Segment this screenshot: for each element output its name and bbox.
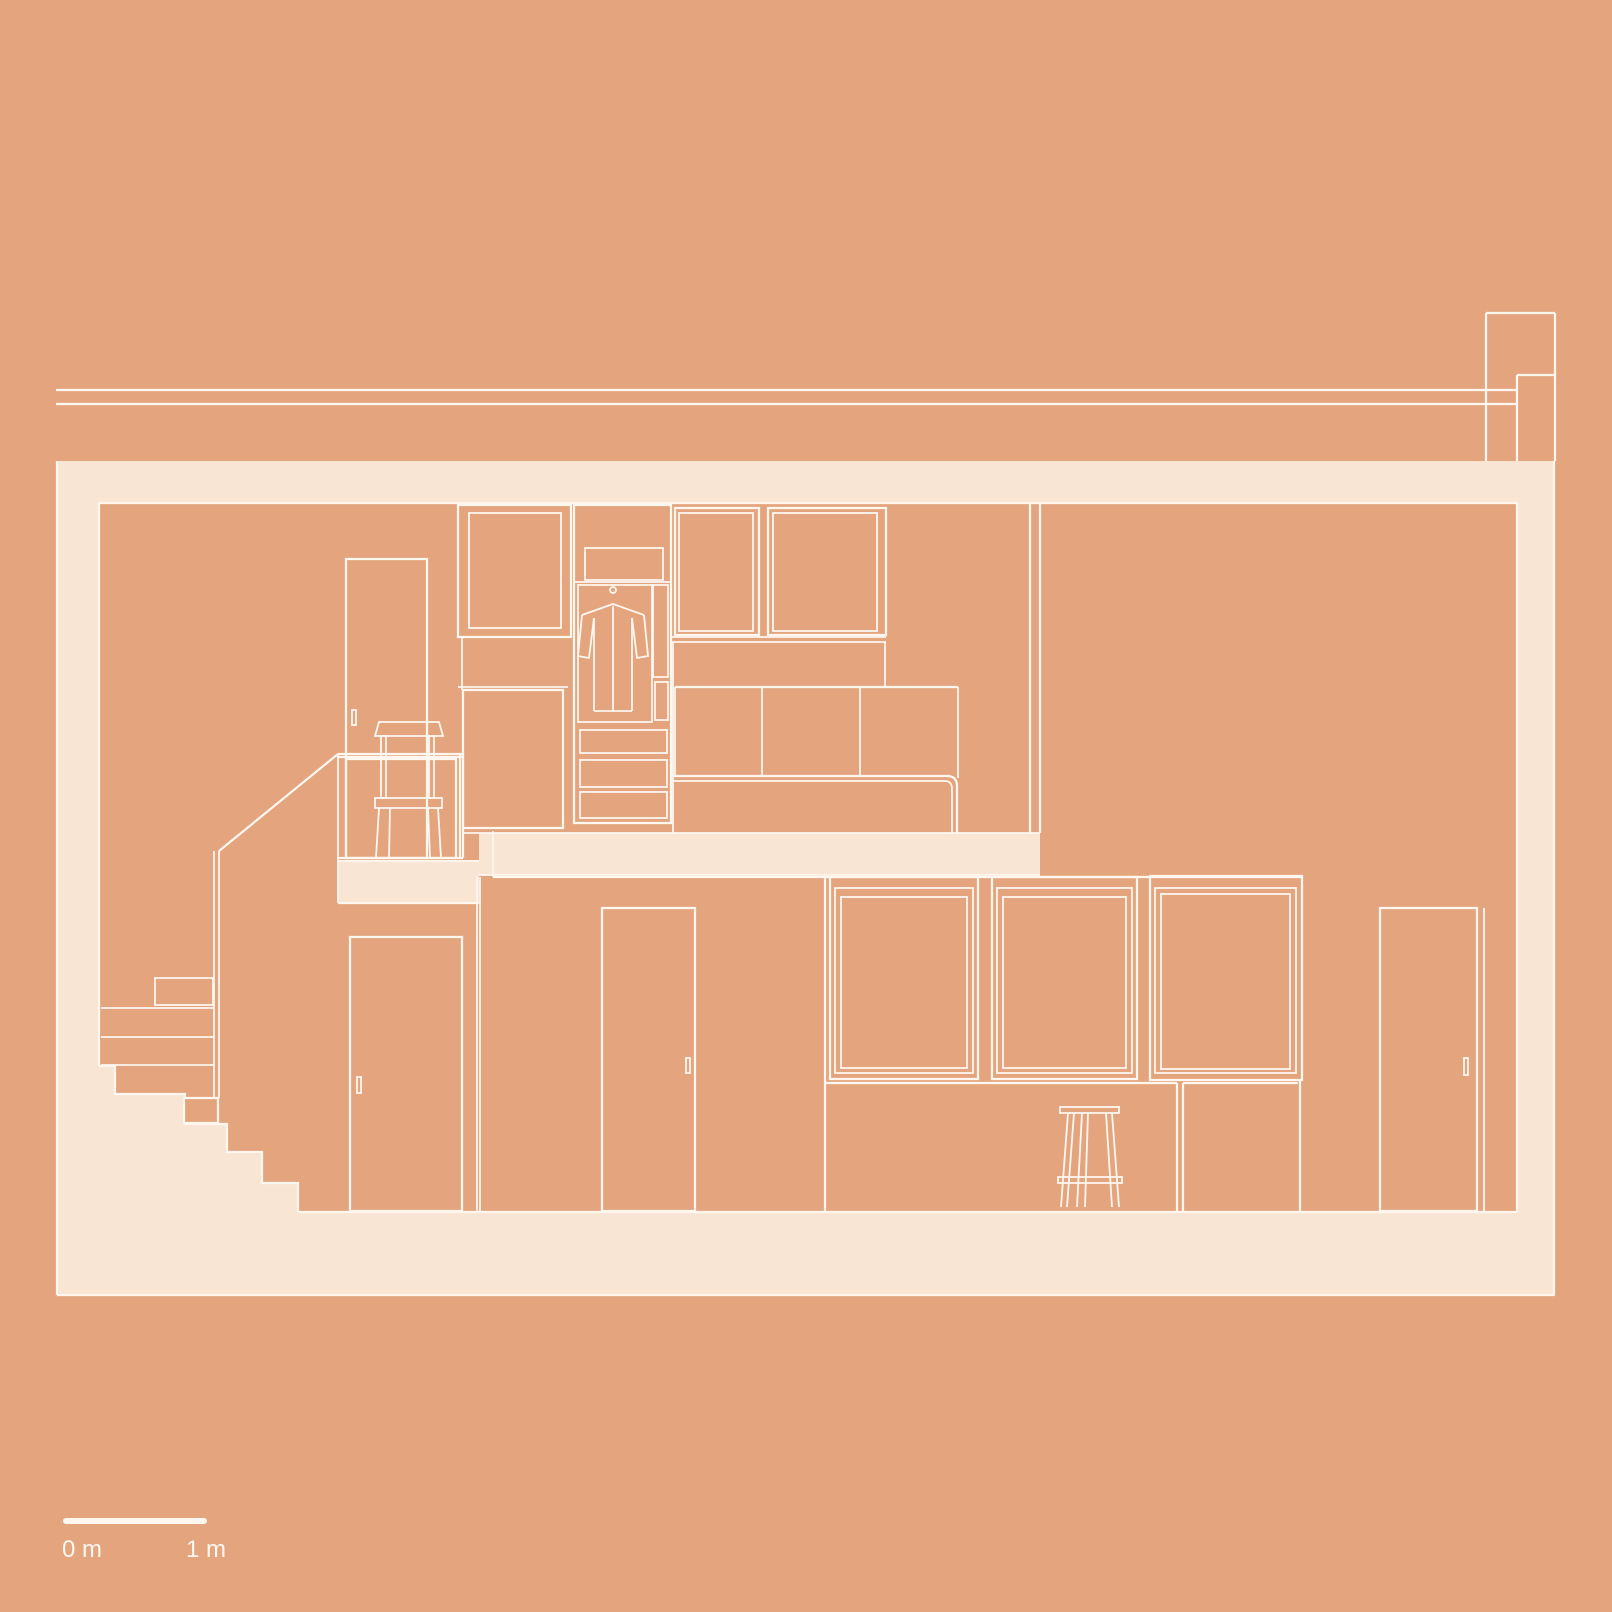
scale-bar-start-label: 0 m: [62, 1536, 102, 1563]
background: [0, 0, 1612, 1612]
mezzanine-slab: [479, 833, 1040, 875]
balcony-slab: [338, 860, 479, 903]
section-drawing: 0 m 1 m: [0, 0, 1612, 1612]
right-wall: [1517, 461, 1555, 1296]
floor-slab: [57, 1212, 1555, 1296]
scale-bar-end-label: 1 m: [186, 1536, 226, 1563]
left-wall: [57, 461, 99, 1296]
ceiling-slab: [57, 461, 1555, 503]
section-drawing-page: 0 m 1 m: [0, 0, 1612, 1612]
stair-step-block: [184, 1098, 218, 1123]
